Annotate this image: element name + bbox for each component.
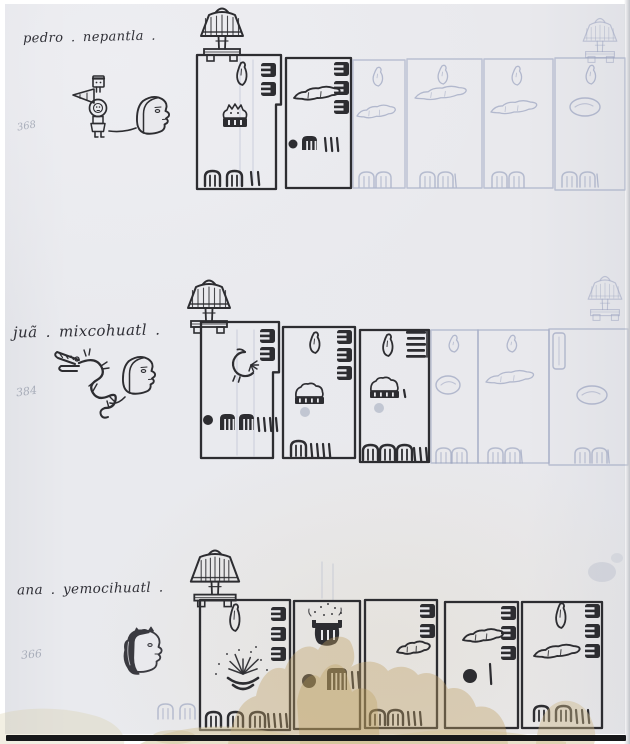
- arch-glyph: [492, 172, 507, 187]
- comb-glyph: [239, 414, 254, 430]
- census-register: [55, 277, 628, 466]
- blob-glyph: [436, 376, 460, 394]
- codex-artwork: [0, 0, 630, 744]
- blob-glyph: [570, 98, 600, 116]
- enotch-glyph: [585, 644, 601, 658]
- arch-glyph: [420, 172, 435, 187]
- droplet-glyph: [230, 604, 239, 631]
- caterpillar-glyph: [462, 628, 503, 643]
- enotch-glyph: [585, 624, 601, 638]
- land-parcel: [353, 60, 405, 188]
- enotch-glyph: [501, 606, 517, 620]
- enotch-glyph: [271, 647, 287, 661]
- enotch-glyph: [260, 347, 276, 361]
- caterpillar-body: [396, 641, 430, 655]
- tick-glyph: [337, 138, 338, 151]
- arch-glyph: [436, 448, 451, 463]
- land-parcel: [549, 329, 628, 465]
- droplet-glyph: [373, 67, 382, 86]
- manuscript-photo: pedro . nepantla . juã . mixcohuatl . a…: [0, 0, 630, 744]
- arch-glyph: [376, 172, 391, 187]
- tick-glyph: [317, 444, 318, 457]
- tick-glyph: [270, 418, 271, 431]
- tick-glyph: [420, 448, 421, 461]
- enotch-glyph: [261, 82, 277, 96]
- woman-head-glyph: [124, 627, 161, 674]
- tick-glyph: [521, 450, 522, 463]
- droplet-glyph: [449, 335, 458, 352]
- arch-glyph: [363, 445, 378, 460]
- tick-glyph: [311, 444, 312, 457]
- tick-glyph: [325, 138, 326, 151]
- dot-glyph: [289, 140, 298, 149]
- arch-glyph: [438, 172, 453, 187]
- dot-glyph: [463, 669, 477, 683]
- droplet-glyph: [438, 65, 447, 84]
- dotf-glyph: [300, 407, 310, 417]
- caterpillar-body: [533, 643, 580, 658]
- tick-glyph: [331, 138, 332, 151]
- serpent-glyph: [55, 349, 116, 418]
- droplet-glyph: [586, 65, 595, 84]
- ladder-glyph: [406, 331, 427, 358]
- enotch-glyph: [420, 604, 436, 618]
- caterpillar-body: [293, 85, 340, 100]
- land-parcel: [360, 330, 429, 462]
- caterpillar-glyph: [414, 85, 466, 101]
- land-parcel: [478, 330, 549, 463]
- land-parcel: [197, 55, 281, 189]
- caterpillar-glyph: [533, 643, 580, 658]
- arch-glyph: [180, 704, 195, 719]
- caterpillar-glyph: [293, 85, 340, 100]
- tick-glyph: [597, 174, 598, 187]
- tick-glyph: [404, 390, 405, 397]
- tick-glyph: [323, 444, 324, 457]
- land-parcel: [201, 322, 279, 458]
- dot-glyph: [203, 415, 213, 425]
- caterpillar-glyph: [485, 369, 534, 385]
- arch-glyph: [562, 172, 577, 187]
- tree-glyph: [588, 277, 622, 321]
- arch-glyph: [359, 172, 374, 187]
- arch-glyph: [291, 441, 306, 456]
- enotch-glyph: [337, 348, 353, 362]
- caterpillar-glyph: [396, 641, 430, 655]
- caterpillar-body: [356, 104, 396, 119]
- caterpillar-body: [485, 369, 534, 385]
- tree-glyph: [201, 9, 243, 62]
- land-parcel: [286, 58, 351, 188]
- droplet-glyph: [556, 603, 565, 628]
- arch-glyph: [509, 172, 524, 187]
- tick-glyph: [426, 448, 427, 461]
- enotch-glyph: [337, 330, 353, 344]
- dotf-glyph: [374, 403, 384, 413]
- caterpillar-glyph: [356, 104, 396, 119]
- mound-glyph: [370, 377, 399, 398]
- enotch-glyph: [261, 63, 277, 77]
- tick-glyph: [264, 418, 265, 431]
- arch-glyph: [575, 448, 590, 463]
- land-parcel: [407, 59, 482, 188]
- arch-glyph: [580, 172, 595, 187]
- land-parcel: [431, 330, 478, 463]
- burst-glyph: [215, 646, 268, 689]
- name-link-line: [109, 128, 136, 132]
- tick-glyph: [608, 450, 609, 463]
- caterpillar-body: [462, 628, 503, 643]
- enotch-glyph: [334, 62, 350, 76]
- mound-glyph: [295, 383, 324, 404]
- comb-glyph: [302, 136, 317, 150]
- tick-glyph: [414, 448, 415, 461]
- arch-glyph: [452, 448, 467, 463]
- arch-glyph: [380, 445, 395, 460]
- register-caption: pedro . nepantla .: [23, 29, 156, 47]
- rect-glyph: [553, 333, 565, 369]
- arch-glyph: [158, 704, 173, 719]
- arch-glyph: [206, 712, 221, 727]
- tick-glyph: [258, 172, 259, 185]
- tree-glyph: [188, 281, 230, 334]
- land-parcel: [555, 58, 625, 190]
- arch-glyph: [397, 445, 412, 460]
- blob-glyph: [577, 386, 607, 404]
- droplet-glyph: [383, 334, 392, 356]
- man-head-glyph: [123, 357, 155, 394]
- man-head-glyph: [137, 97, 169, 134]
- droplet-glyph: [512, 66, 521, 85]
- enotch-glyph: [271, 607, 287, 621]
- photo-edge: [6, 735, 626, 741]
- enotch-glyph: [585, 604, 601, 618]
- droplet-glyph: [237, 62, 246, 85]
- land-parcel: [283, 327, 355, 458]
- tick-glyph: [490, 664, 491, 684]
- enotch-glyph: [501, 646, 517, 660]
- comb-glyph: [220, 414, 235, 430]
- tick-glyph: [329, 444, 330, 457]
- caterpillar-body: [414, 85, 466, 101]
- tick-glyph: [258, 418, 259, 431]
- enotch-glyph: [420, 624, 436, 638]
- enotch-glyph: [260, 329, 276, 343]
- caterpillar-glyph: [490, 99, 537, 114]
- enotch-glyph: [337, 366, 353, 380]
- caterpillar-body: [490, 99, 537, 114]
- enotch-glyph: [334, 100, 350, 114]
- tick-glyph: [251, 172, 252, 185]
- tree-glyph: [191, 551, 239, 607]
- land-parcel: [484, 59, 553, 188]
- droplet-glyph: [507, 335, 516, 352]
- tick-glyph: [455, 174, 456, 187]
- tree-glyph: [583, 19, 617, 63]
- critter-glyph: [223, 104, 247, 127]
- arch-glyph: [592, 448, 607, 463]
- arch-glyph: [505, 448, 520, 463]
- register-caption: juã . mixcohuatl .: [13, 320, 161, 341]
- page-edge-shadow: [624, 0, 630, 744]
- flag-person-glyph: [73, 76, 107, 137]
- arch-glyph: [488, 448, 503, 463]
- margin-folio-number: 366: [20, 647, 42, 662]
- enotch-glyph: [271, 627, 287, 641]
- tick-glyph: [276, 418, 277, 431]
- arch-glyph: [205, 171, 220, 186]
- register-caption: ana . yemocihuatl .: [17, 579, 164, 598]
- droplet-glyph: [310, 332, 319, 353]
